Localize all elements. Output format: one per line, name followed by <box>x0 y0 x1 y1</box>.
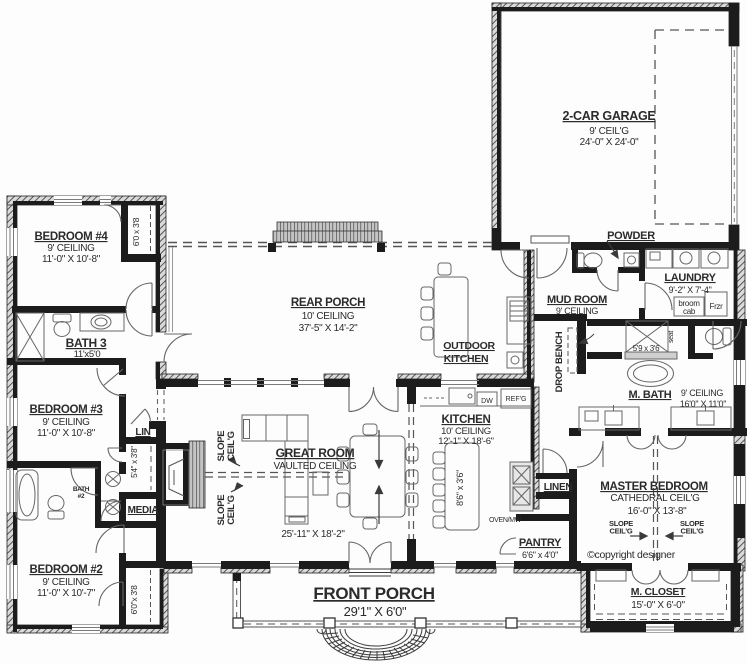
svg-text:5'4" x 3'8": 5'4" x 3'8" <box>130 446 139 478</box>
svg-text:Frzr: Frzr <box>709 302 723 311</box>
svg-text:CEIL'G: CEIL'G <box>610 527 633 536</box>
svg-text:cab: cab <box>683 307 696 316</box>
svg-text:24'-0" X 24'-0": 24'-0" X 24'-0" <box>580 137 639 148</box>
svg-text:REF'G: REF'G <box>506 396 527 403</box>
svg-text:POWDER: POWDER <box>607 230 655 242</box>
svg-text:REAR PORCH: REAR PORCH <box>291 297 365 309</box>
svg-text:KITCHEN: KITCHEN <box>444 353 489 365</box>
svg-text:11'x5'0: 11'x5'0 <box>74 349 101 360</box>
svg-text:12'-1" X 18'-6": 12'-1" X 18'-6" <box>438 436 494 447</box>
svg-text:9' CEILING: 9' CEILING <box>42 577 90 588</box>
svg-text:seat: seat <box>668 331 675 343</box>
svg-text:KITCHEN: KITCHEN <box>441 414 490 426</box>
svg-text:M. CLOSET: M. CLOSET <box>631 586 686 598</box>
svg-text:2-CAR GARAGE: 2-CAR GARAGE <box>563 109 656 123</box>
svg-text:DW: DW <box>481 398 493 405</box>
svg-text:LIN: LIN <box>135 427 150 438</box>
svg-text:VAULTED CEILING: VAULTED CEILING <box>274 461 357 472</box>
svg-text:CEIL'G: CEIL'G <box>226 431 237 461</box>
svg-text:8'6" x 3'6": 8'6" x 3'6" <box>455 470 465 506</box>
svg-text:BATH 3: BATH 3 <box>66 336 107 350</box>
svg-text:FRONT PORCH: FRONT PORCH <box>313 584 434 603</box>
svg-text:16'0" X 11'0": 16'0" X 11'0" <box>680 399 726 409</box>
svg-text:6'0 x 3'8: 6'0 x 3'8 <box>131 217 141 246</box>
svg-text:CATHEDRAL CEIL'G: CATHEDRAL CEIL'G <box>610 493 700 504</box>
svg-text:©copyright designer: ©copyright designer <box>587 549 676 561</box>
svg-text:10' CEILING: 10' CEILING <box>302 311 355 322</box>
svg-text:6'0"x 3'8: 6'0"x 3'8 <box>129 585 139 615</box>
svg-text:25'-11" X 18'-2": 25'-11" X 18'-2" <box>281 529 345 540</box>
svg-text:M. BATH: M. BATH <box>629 389 672 401</box>
svg-text:29'1" X 6'0": 29'1" X 6'0" <box>344 604 407 619</box>
svg-text:11'-0" X 10'-8": 11'-0" X 10'-8" <box>37 428 96 439</box>
svg-text:MUD ROOM: MUD ROOM <box>547 294 607 306</box>
svg-text:9' CEILING: 9' CEILING <box>47 243 95 254</box>
svg-text:LAUNDRY: LAUNDRY <box>664 272 716 284</box>
svg-text:BEDROOM #4: BEDROOM #4 <box>34 231 108 243</box>
svg-text:CEIL'G: CEIL'G <box>681 527 704 536</box>
svg-text:15'-0" X 6'-0": 15'-0" X 6'-0" <box>631 600 685 611</box>
svg-text:#2: #2 <box>78 493 85 500</box>
svg-text:9' CEIL'G: 9' CEIL'G <box>589 126 629 137</box>
svg-text:LINEN: LINEN <box>544 482 573 493</box>
svg-text:9'-2" X 7'-4": 9'-2" X 7'-4" <box>669 285 712 295</box>
svg-text:37'-5" X 14'-2": 37'-5" X 14'-2" <box>299 323 358 334</box>
svg-text:DROP BENCH: DROP BENCH <box>554 331 565 392</box>
svg-text:BATH: BATH <box>73 486 90 493</box>
svg-text:MASTER BEDROOM: MASTER BEDROOM <box>600 481 708 493</box>
svg-text:9' CEILING: 9' CEILING <box>556 306 599 316</box>
svg-text:BEDROOM #2: BEDROOM #2 <box>29 564 102 576</box>
svg-text:GREAT ROOM: GREAT ROOM <box>276 446 355 460</box>
svg-text:PANTRY: PANTRY <box>519 537 562 549</box>
svg-text:9' CEILING: 9' CEILING <box>42 417 90 428</box>
svg-text:OUTDOOR: OUTDOOR <box>443 340 495 352</box>
svg-text:6'6" x 4'0": 6'6" x 4'0" <box>522 550 558 560</box>
svg-text:CEIL'G: CEIL'G <box>226 495 237 525</box>
svg-text:9' CEILING: 9' CEILING <box>681 388 724 398</box>
svg-text:MEDIA: MEDIA <box>128 505 159 516</box>
svg-text:5'9 x 3'6: 5'9 x 3'6 <box>633 344 660 353</box>
svg-text:BEDROOM #3: BEDROOM #3 <box>29 404 102 416</box>
svg-text:11'-0" X 10'-8": 11'-0" X 10'-8" <box>42 254 101 265</box>
svg-text:16'-0" X 13'-8": 16'-0" X 13'-8" <box>628 506 687 517</box>
svg-text:11'-0" X 10'-7": 11'-0" X 10'-7" <box>37 588 96 599</box>
svg-text:OVEN/MW: OVEN/MW <box>489 517 522 524</box>
